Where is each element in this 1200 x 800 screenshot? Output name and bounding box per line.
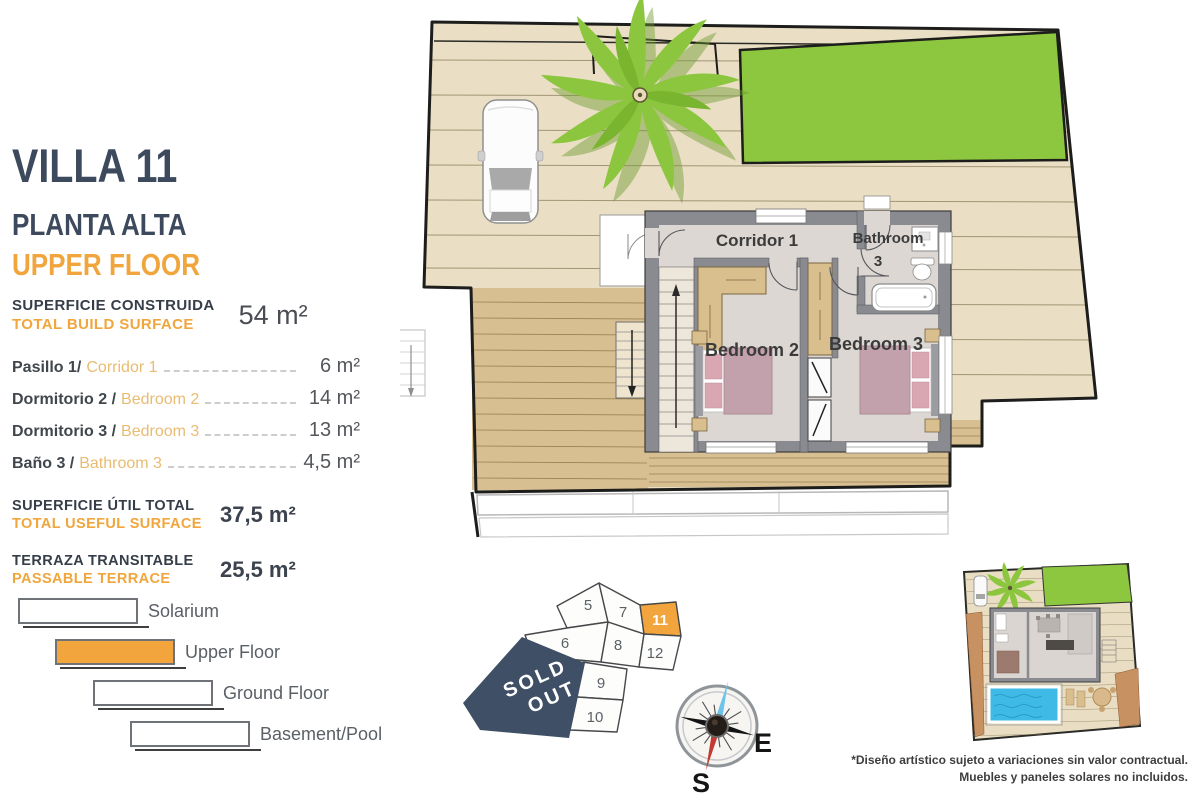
useful-surface-label-en: TOTAL USEFUL SURFACE: [12, 516, 220, 532]
room-area-value: 13 m²: [302, 419, 360, 442]
bathtub-icon: [872, 284, 936, 311]
svg-text:11: 11: [652, 612, 668, 629]
legend-swatch: [130, 721, 250, 747]
disclaimer-line2: Muebles y paneles solares no incluidos.: [828, 769, 1188, 786]
compass-east-label: E: [754, 728, 772, 758]
build-surface-value: 54 m²: [239, 300, 308, 331]
lawn: [740, 32, 1067, 163]
bathroom-number: 3: [874, 253, 882, 270]
thumb-building: [990, 608, 1116, 682]
corridor-label: Corridor 1: [716, 231, 798, 250]
svg-text:7: 7: [619, 604, 627, 621]
legend-label: Solarium: [148, 601, 219, 622]
terrace-row: TERRAZA TRANSITABLE PASSABLE TERRACE 25,…: [12, 553, 360, 587]
dotted-leader: [205, 402, 296, 404]
bedroom3-label: Bedroom 3: [829, 334, 923, 354]
room-area-value: 14 m²: [302, 387, 360, 410]
terrace-value: 25,5 m²: [220, 557, 296, 583]
room-name-es: Dormitorio 2 /: [12, 391, 116, 409]
site-plan-thumbnail: [950, 556, 1155, 756]
disclaimer-line1: *Diseño artístico sujeto a variaciones s…: [828, 752, 1188, 769]
legend-swatch: [18, 598, 138, 624]
thumb-car-icon: [974, 576, 987, 606]
room-row-bedroom3: Dormitorio 3 / Bedroom 3 13 m²: [12, 419, 360, 442]
room-name-es: Dormitorio 3 /: [12, 423, 116, 441]
room-name-en: Bedroom 2: [121, 391, 199, 409]
legend-item-basement-pool: Basement/Pool: [130, 721, 358, 747]
legend-label: Basement/Pool: [260, 724, 382, 745]
room-name-en: Bedroom 3: [121, 423, 199, 441]
thumb-pool: [986, 684, 1062, 725]
legend-item-solarium: Solarium: [18, 598, 358, 624]
useful-surface-label-es: SUPERFICIE ÚTIL TOTAL: [12, 498, 220, 514]
room-name-es: Pasillo 1/: [12, 359, 81, 377]
disclaimer: *Diseño artístico sujeto a variaciones s…: [828, 752, 1188, 786]
dotted-leader: [168, 466, 296, 468]
svg-text:5: 5: [584, 597, 592, 614]
thumb-stairs: [1102, 640, 1116, 662]
dotted-leader: [205, 434, 296, 436]
build-surface-label-es: SUPERFICIE CONSTRUIDA: [12, 297, 215, 314]
exterior-stairs: [616, 322, 648, 398]
room-name-es: Baño 3 /: [12, 455, 74, 473]
room-area-value: 6 m²: [302, 355, 360, 378]
terrace-label-es: TERRAZA TRANSITABLE: [12, 553, 220, 569]
subtitle-spanish: PLANTA ALTA: [12, 207, 304, 243]
svg-text:6: 6: [561, 635, 569, 652]
info-panel: VILLA 11 PLANTA ALTA UPPER FLOOR SUPERFI…: [12, 138, 360, 587]
dotted-leader: [164, 370, 296, 372]
legend-swatch-highlighted: [55, 639, 175, 665]
subtitle-english: UPPER FLOOR: [12, 247, 304, 283]
room-name-en: Corridor 1: [86, 359, 157, 377]
terrace-label-en: PASSABLE TERRACE: [12, 571, 220, 587]
svg-text:8: 8: [614, 637, 622, 654]
room-name-en: Bathroom 3: [79, 455, 162, 473]
legend-label: Upper Floor: [185, 642, 280, 663]
build-surface-row: SUPERFICIE CONSTRUIDA TOTAL BUILD SURFAC…: [12, 297, 360, 333]
svg-text:10: 10: [587, 709, 604, 726]
legend-swatch: [93, 680, 213, 706]
sliding-doors: [808, 358, 831, 441]
building: Corridor 1 Bathroom 3 Bedroom 2 Bedroom …: [645, 196, 952, 453]
railing: [472, 491, 948, 537]
svg-text:12: 12: [647, 645, 664, 662]
legend-label: Ground Floor: [223, 683, 329, 704]
room-row-bathroom3: Baño 3 / Bathroom 3 4,5 m²: [12, 451, 360, 474]
room-row-bedroom2: Dormitorio 2 / Bedroom 2 14 m²: [12, 387, 360, 410]
thumb-lawn: [1042, 564, 1132, 606]
useful-surface-row: SUPERFICIE ÚTIL TOTAL TOTAL USEFUL SURFA…: [12, 498, 360, 532]
legend-item-upper-floor: Upper Floor: [55, 639, 358, 665]
interior-stairs: [659, 267, 694, 452]
compass-south-label: S: [692, 768, 710, 798]
room-row-corridor: Pasillo 1/ Corridor 1 6 m²: [12, 355, 360, 378]
build-surface-label-en: TOTAL BUILD SURFACE: [12, 316, 215, 333]
floor-legend: Solarium Upper Floor Ground Floor Baseme…: [18, 598, 358, 762]
room-area-value: 4,5 m²: [302, 451, 360, 474]
room-list: Pasillo 1/ Corridor 1 6 m² Dormitorio 2 …: [12, 355, 360, 474]
bathroom-label: Bathroom: [853, 230, 924, 247]
svg-text:9: 9: [597, 675, 605, 692]
bedroom2-label: Bedroom 2: [705, 340, 799, 360]
neighbour-stairs: [400, 330, 425, 397]
useful-surface-value: 37,5 m²: [220, 502, 296, 528]
floorplan-sheet: VILLA 11 PLANTA ALTA UPPER FLOOR SUPERFI…: [0, 0, 1200, 800]
legend-item-ground-floor: Ground Floor: [93, 680, 358, 706]
car-icon: [478, 100, 543, 223]
page-title: VILLA 11: [12, 138, 304, 193]
compass-icon: E S: [660, 664, 780, 798]
upper-floor-plan: Corridor 1 Bathroom 3 Bedroom 2 Bedroom …: [400, 0, 1160, 560]
